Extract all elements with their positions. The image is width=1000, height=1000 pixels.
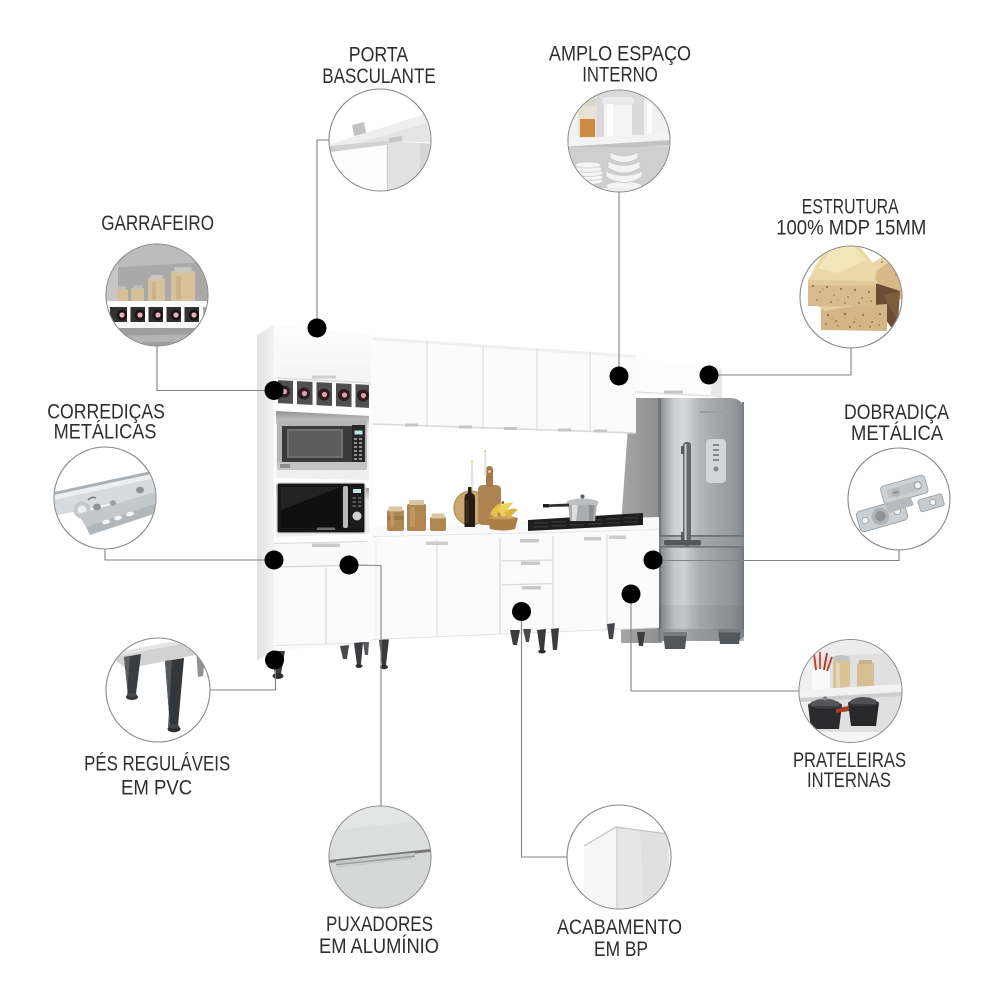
svg-text:ESTRUTURA: ESTRUTURA (802, 196, 899, 219)
svg-text:INTERNAS: INTERNAS (807, 769, 891, 792)
svg-text:PÉS REGULÁVEIS: PÉS REGULÁVEIS (84, 753, 230, 776)
svg-text:METÁLICA: METÁLICA (851, 422, 943, 445)
svg-text:GARRAFEIRO: GARRAFEIRO (101, 212, 214, 235)
svg-text:BASCULANTE: BASCULANTE (322, 65, 435, 88)
svg-text:PUXADORES: PUXADORES (326, 913, 433, 936)
svg-text:100% MDP 15MM: 100% MDP 15MM (776, 216, 926, 239)
svg-text:INTERNO: INTERNO (582, 63, 658, 86)
svg-text:METÁLICAS: METÁLICAS (54, 420, 157, 443)
svg-text:AMPLO ESPAÇO: AMPLO ESPAÇO (549, 42, 691, 65)
svg-text:EM BP: EM BP (594, 938, 648, 961)
svg-text:EM PVC: EM PVC (121, 776, 192, 799)
svg-text:ACABAMENTO: ACABAMENTO (557, 916, 682, 939)
svg-text:DOBRADIÇA: DOBRADIÇA (844, 401, 949, 424)
svg-text:EM ALUMÍNIO: EM ALUMÍNIO (319, 935, 439, 958)
svg-text:PORTA: PORTA (349, 44, 408, 67)
